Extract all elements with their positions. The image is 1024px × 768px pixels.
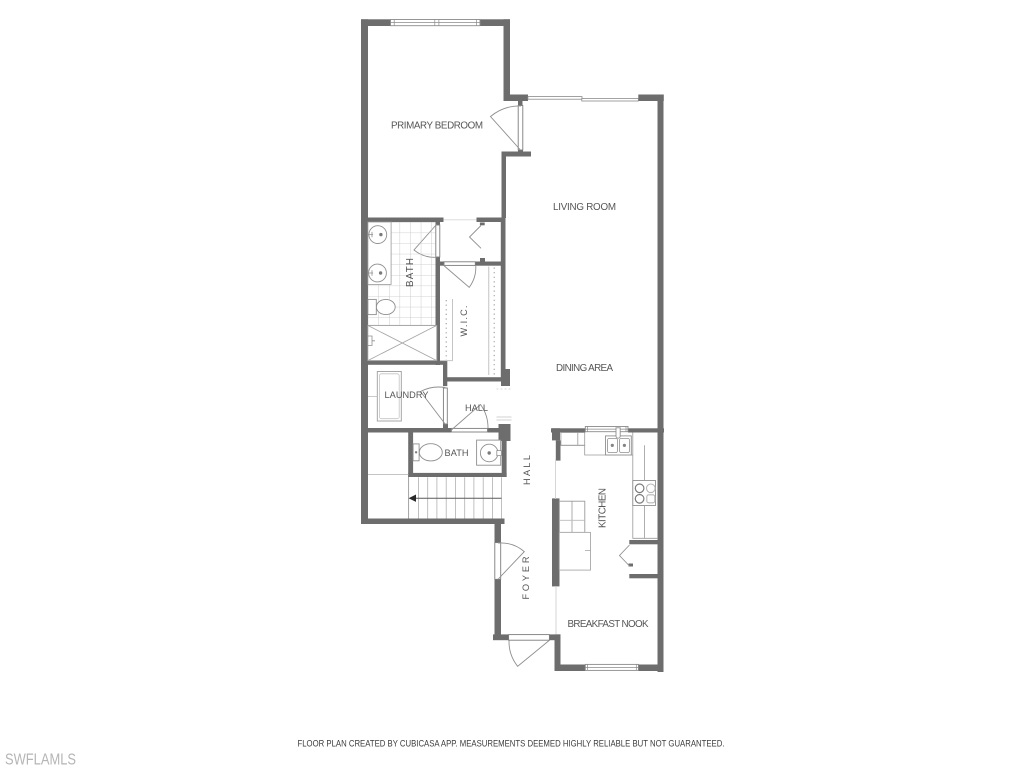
svg-text:SWFLAMLS: SWFLAMLS (5, 752, 76, 768)
svg-text:KITCHEN: KITCHEN (598, 488, 609, 528)
svg-text:BATH: BATH (405, 258, 416, 287)
svg-text:HALL: HALL (522, 455, 532, 485)
svg-text:BATH: BATH (445, 448, 469, 458)
svg-text:PRIMARY BEDROOM: PRIMARY BEDROOM (391, 120, 483, 131)
svg-text:FLOOR PLAN CREATED BY CUBICASA: FLOOR PLAN CREATED BY CUBICASA APP. MEAS… (298, 739, 725, 749)
svg-text:DINING AREA: DINING AREA (556, 363, 613, 374)
svg-text:BREAKFAST NOOK: BREAKFAST NOOK (568, 619, 649, 630)
svg-text:W.I.C.: W.I.C. (459, 306, 469, 337)
svg-text:LAUNDRY: LAUNDRY (385, 390, 429, 400)
svg-text:LIVING ROOM: LIVING ROOM (553, 202, 616, 213)
svg-text:HALL: HALL (465, 403, 488, 413)
